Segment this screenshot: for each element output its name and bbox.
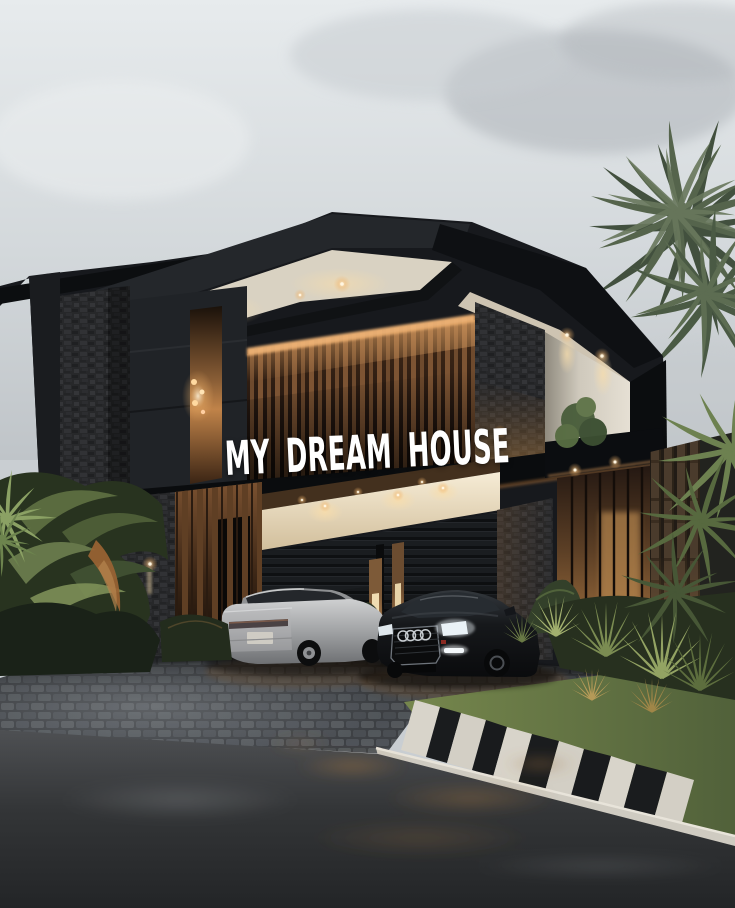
pendant-lights <box>182 370 214 422</box>
ground <box>0 651 735 908</box>
dream-house-photo: MY DREAM HOUSE <box>0 0 735 908</box>
dream-house-caption: MY DREAM HOUSE <box>224 423 511 483</box>
